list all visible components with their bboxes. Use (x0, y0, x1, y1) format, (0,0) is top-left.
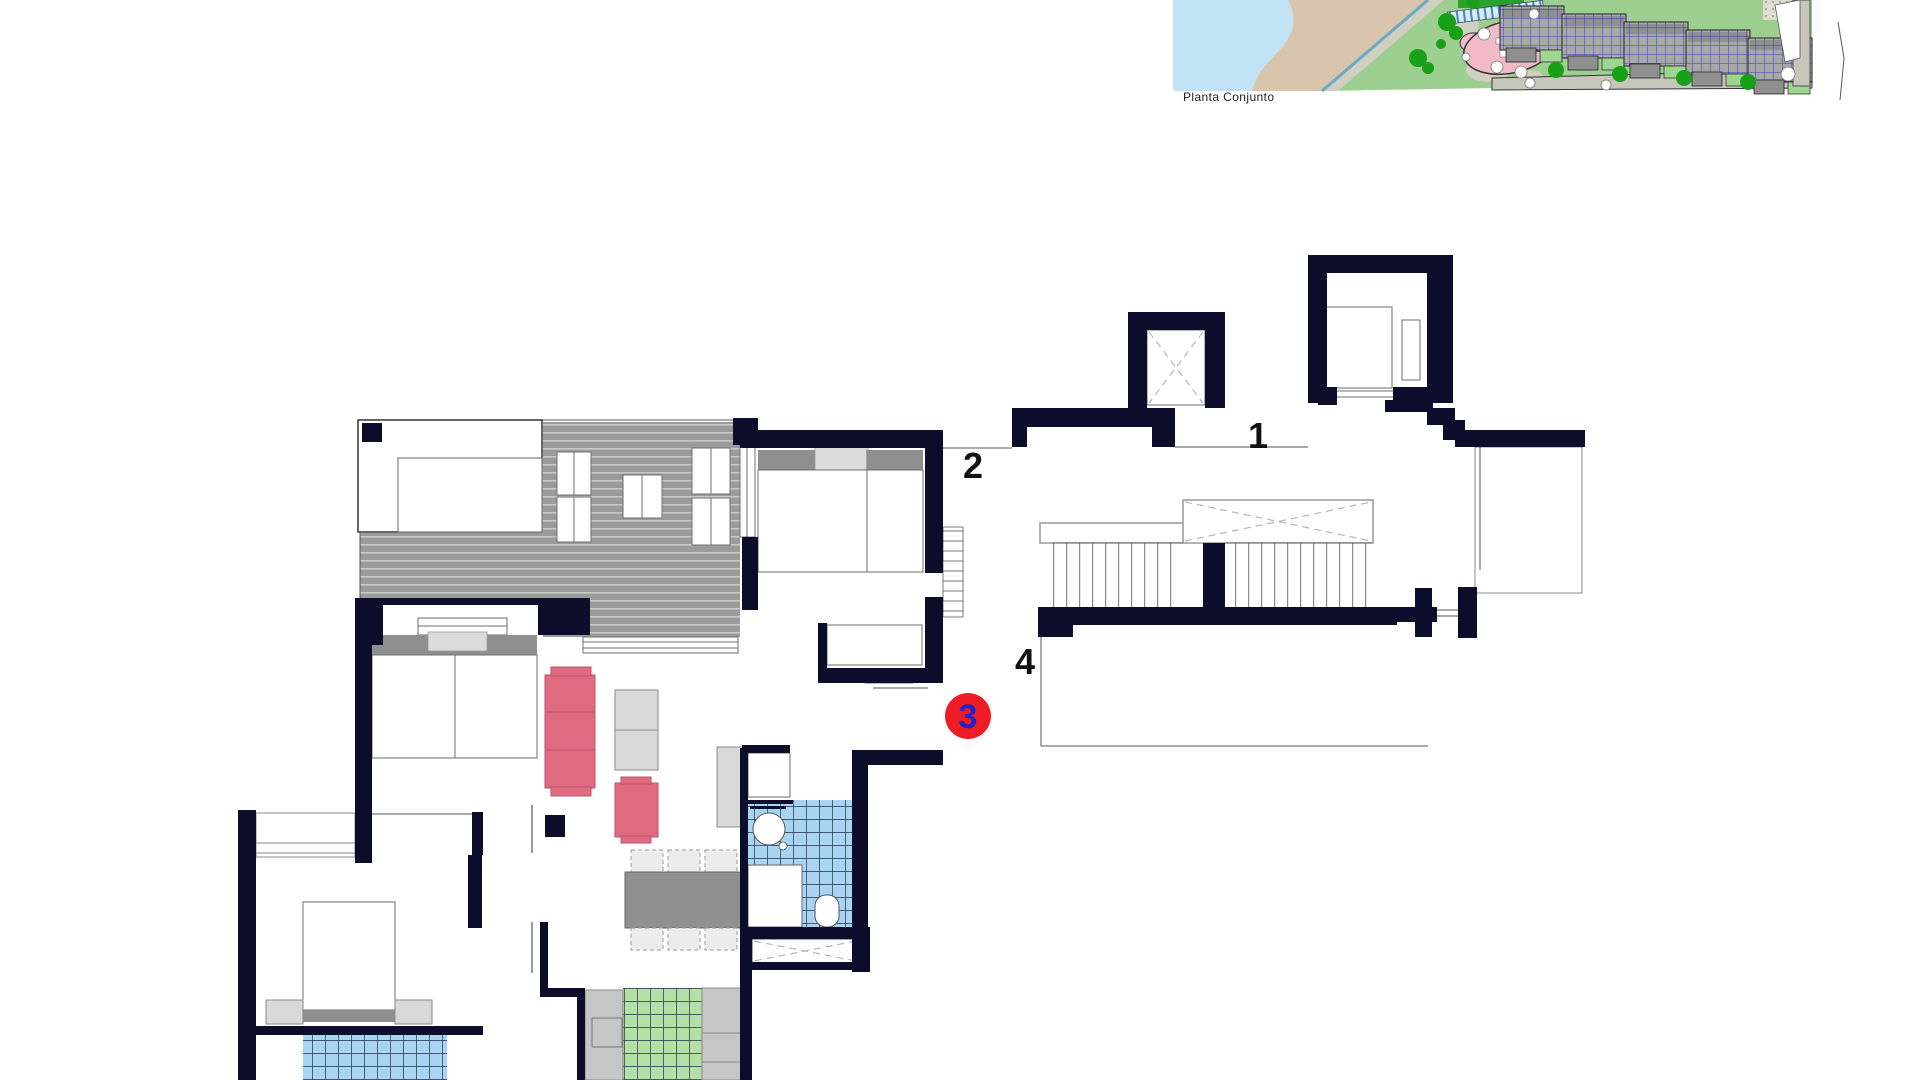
bedroom-top (758, 447, 928, 688)
unit-label-2: 2 (963, 445, 983, 486)
shower-basin (753, 813, 785, 845)
wardrobe (256, 813, 355, 857)
dining-area (625, 850, 742, 950)
property-line (1838, 22, 1844, 100)
site-plan-caption: Planta Conjunto (1183, 90, 1274, 104)
elevator-room (1323, 307, 1420, 397)
bedroom-left (372, 632, 537, 758)
bathroom (748, 753, 852, 927)
elevator-shaft (1147, 330, 1205, 405)
sideboard (717, 747, 743, 827)
unit-label-1: 1 (1248, 415, 1268, 456)
desk (827, 625, 922, 665)
shower-tray (748, 865, 802, 927)
plan-canvas: Planta Conjunto (0, 0, 1920, 1080)
toilet (815, 895, 839, 927)
unit-marker-3[interactable]: 3 (945, 693, 991, 739)
unit-marker-number: 3 (959, 698, 978, 736)
washbasin (748, 753, 790, 797)
kitchen (585, 988, 742, 1080)
site-plan (1173, 0, 1844, 100)
plunge-pool-tiles (303, 1035, 447, 1080)
entry-door (752, 939, 858, 963)
floor-plan: 1 2 4 3 (238, 255, 1585, 1080)
roof-room (358, 420, 542, 532)
armchair (615, 783, 658, 837)
dining-table (625, 872, 742, 928)
sofa (545, 675, 595, 788)
corridor-window (943, 527, 963, 617)
unit-label-4: 4 (1015, 641, 1035, 682)
